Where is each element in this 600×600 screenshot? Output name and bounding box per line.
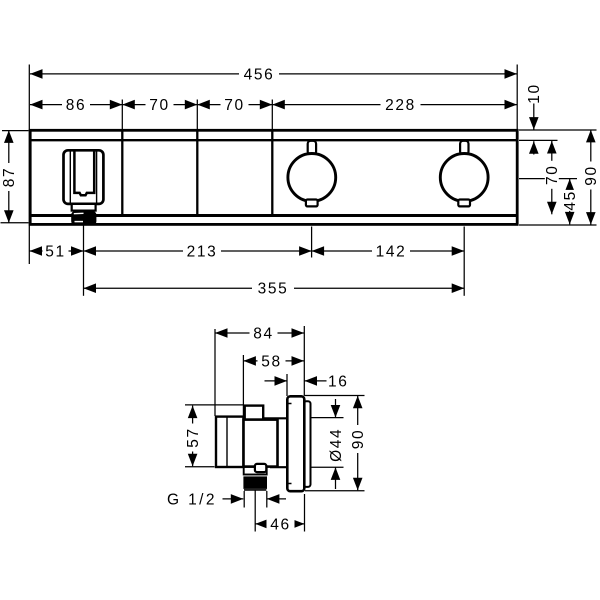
svg-text:45: 45 [562, 190, 579, 210]
svg-text:456: 456 [244, 66, 275, 83]
svg-text:70: 70 [544, 165, 561, 185]
svg-text:70: 70 [224, 97, 244, 114]
svg-text:87: 87 [1, 167, 18, 187]
svg-text:86: 86 [66, 97, 86, 114]
svg-text:84: 84 [253, 325, 273, 342]
svg-text:228: 228 [385, 97, 416, 114]
svg-text:70: 70 [149, 97, 169, 114]
svg-text:10: 10 [526, 83, 543, 103]
svg-text:58: 58 [261, 353, 281, 370]
svg-text:16: 16 [328, 373, 348, 390]
svg-text:142: 142 [376, 243, 407, 260]
svg-text:213: 213 [187, 243, 218, 260]
svg-text:G 1/2: G 1/2 [167, 491, 217, 508]
svg-text:Ø44: Ø44 [328, 428, 345, 462]
svg-text:51: 51 [45, 243, 65, 260]
svg-text:90: 90 [583, 165, 600, 185]
svg-text:46: 46 [270, 516, 290, 533]
svg-text:57: 57 [185, 427, 202, 447]
svg-text:355: 355 [258, 281, 289, 298]
svg-text:90: 90 [350, 429, 367, 449]
